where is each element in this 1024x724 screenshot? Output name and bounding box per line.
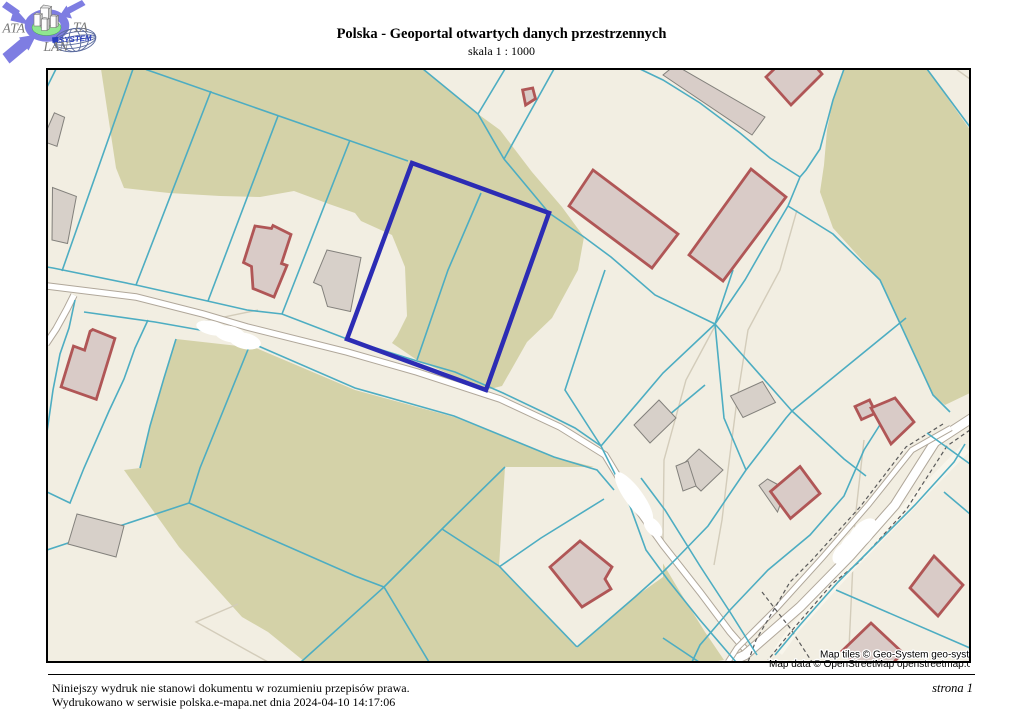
svg-text:Map data © OpenStreetMap opens: Map data © OpenStreetMap openstreetmap.o… xyxy=(769,659,981,670)
